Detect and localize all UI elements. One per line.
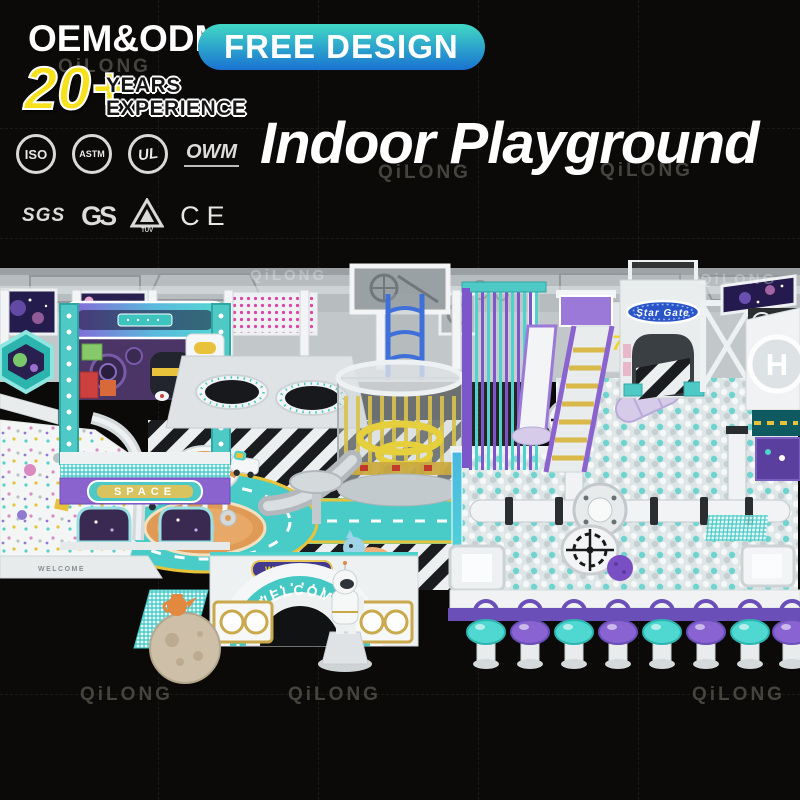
wall-rim-text: WELCOME — [38, 566, 85, 573]
tuv-icon: TÜV — [130, 198, 164, 234]
experience-word: EXPERIENCE — [106, 97, 246, 120]
left-railing — [0, 394, 58, 424]
sandbox-wall: WELCOME — [0, 556, 162, 578]
trampoline — [196, 375, 268, 409]
side-console — [752, 410, 800, 480]
ul-icon: UL — [128, 134, 168, 174]
sgs-icon: SGS — [22, 205, 65, 227]
hexagon-window — [0, 332, 52, 392]
svg-text:SPACE: SPACE — [114, 486, 176, 498]
helipad-wall: H — [746, 308, 800, 410]
welcome-building: WELCOME WELCOME — [210, 552, 418, 646]
brand-watermark: QiLONG — [700, 271, 777, 288]
star-gate-sign: Star Gate — [627, 301, 699, 323]
promo-banner: QiLONG QiLONG QiLONG QiLONG QiLONG QiLON… — [0, 0, 800, 800]
ce-icon: CE — [180, 201, 232, 232]
tuv-triangle — [130, 198, 164, 228]
space-sign: SPACE — [88, 481, 202, 502]
brand-watermark: QiLONG — [250, 267, 327, 284]
gs-icon: GS — [81, 201, 114, 232]
years-experience-text: YEARS EXPERIENCE — [106, 74, 246, 120]
purple-ball — [607, 555, 633, 581]
certification-row-1: ISO ASTM UL OWM — [16, 134, 239, 174]
page-title: Indoor Playground — [260, 110, 759, 177]
certification-row-2: SGS GS TÜV CE — [22, 198, 232, 234]
ballpit-counter — [448, 590, 800, 621]
pit-step-platform — [450, 546, 504, 590]
spider-tower-cylinder — [338, 362, 462, 506]
owm-logo: OWM — [184, 141, 239, 167]
iso-icon: ISO — [16, 134, 56, 174]
star-gate: Star Gate — [620, 260, 706, 400]
playground-render: WELCOME — [0, 260, 800, 696]
grid-line — [0, 238, 800, 239]
helipad-letter: H — [766, 347, 788, 382]
svg-text:Star Gate: Star Gate — [636, 308, 689, 319]
gold-panel — [214, 602, 272, 642]
astm-icon: ASTM — [72, 134, 112, 174]
years-word: YEARS — [106, 74, 246, 97]
free-design-badge: FREE DESIGN — [198, 24, 485, 70]
